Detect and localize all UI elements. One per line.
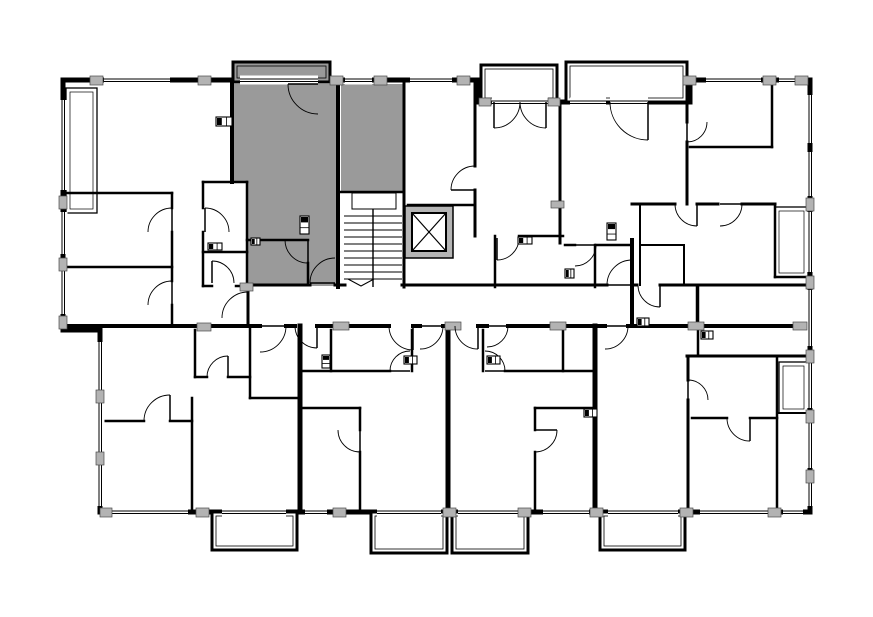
balcony [481,65,557,102]
wall-fixture [300,216,309,234]
wall-fixture [565,269,574,278]
wall-fixture [404,356,417,364]
balcony [452,512,528,553]
balcony [371,512,447,553]
balcony [566,62,687,102]
balcony [600,512,685,550]
elevator-shaft [405,206,453,258]
wall-fixture [637,318,649,326]
wall-fixture [584,409,597,417]
floor-plan-svg [0,0,873,617]
wall-fixture [322,355,330,368]
wall-fixture [487,356,500,364]
wall-fixture [607,223,616,240]
wall-fixture [518,237,532,244]
floor-plan-page [0,0,873,617]
balcony [212,512,297,550]
wall-fixture [208,243,222,250]
wall-fixture [216,117,232,126]
wall-fixture [701,331,713,339]
wall-fixture [251,238,260,245]
